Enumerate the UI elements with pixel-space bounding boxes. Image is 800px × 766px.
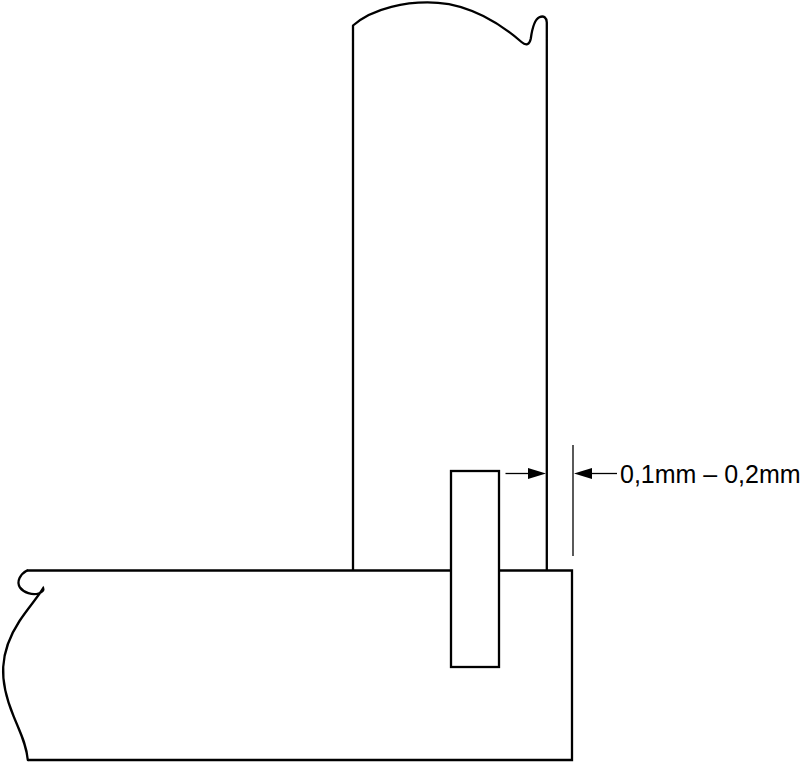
section-drawing: 0,1mm – 0,2mm (0, 0, 800, 766)
arrowhead-right-icon (528, 468, 546, 479)
arrowhead-left-icon (574, 468, 592, 479)
dimension-label: 0,1mm – 0,2mm (620, 460, 800, 488)
drawing-canvas: 0,1mm – 0,2mm (0, 0, 800, 766)
dimension-leader-left (506, 468, 547, 479)
dimension-leader-right (574, 468, 617, 479)
dowel-pin (451, 471, 499, 667)
horizontal-panel-break-line (3, 571, 43, 761)
